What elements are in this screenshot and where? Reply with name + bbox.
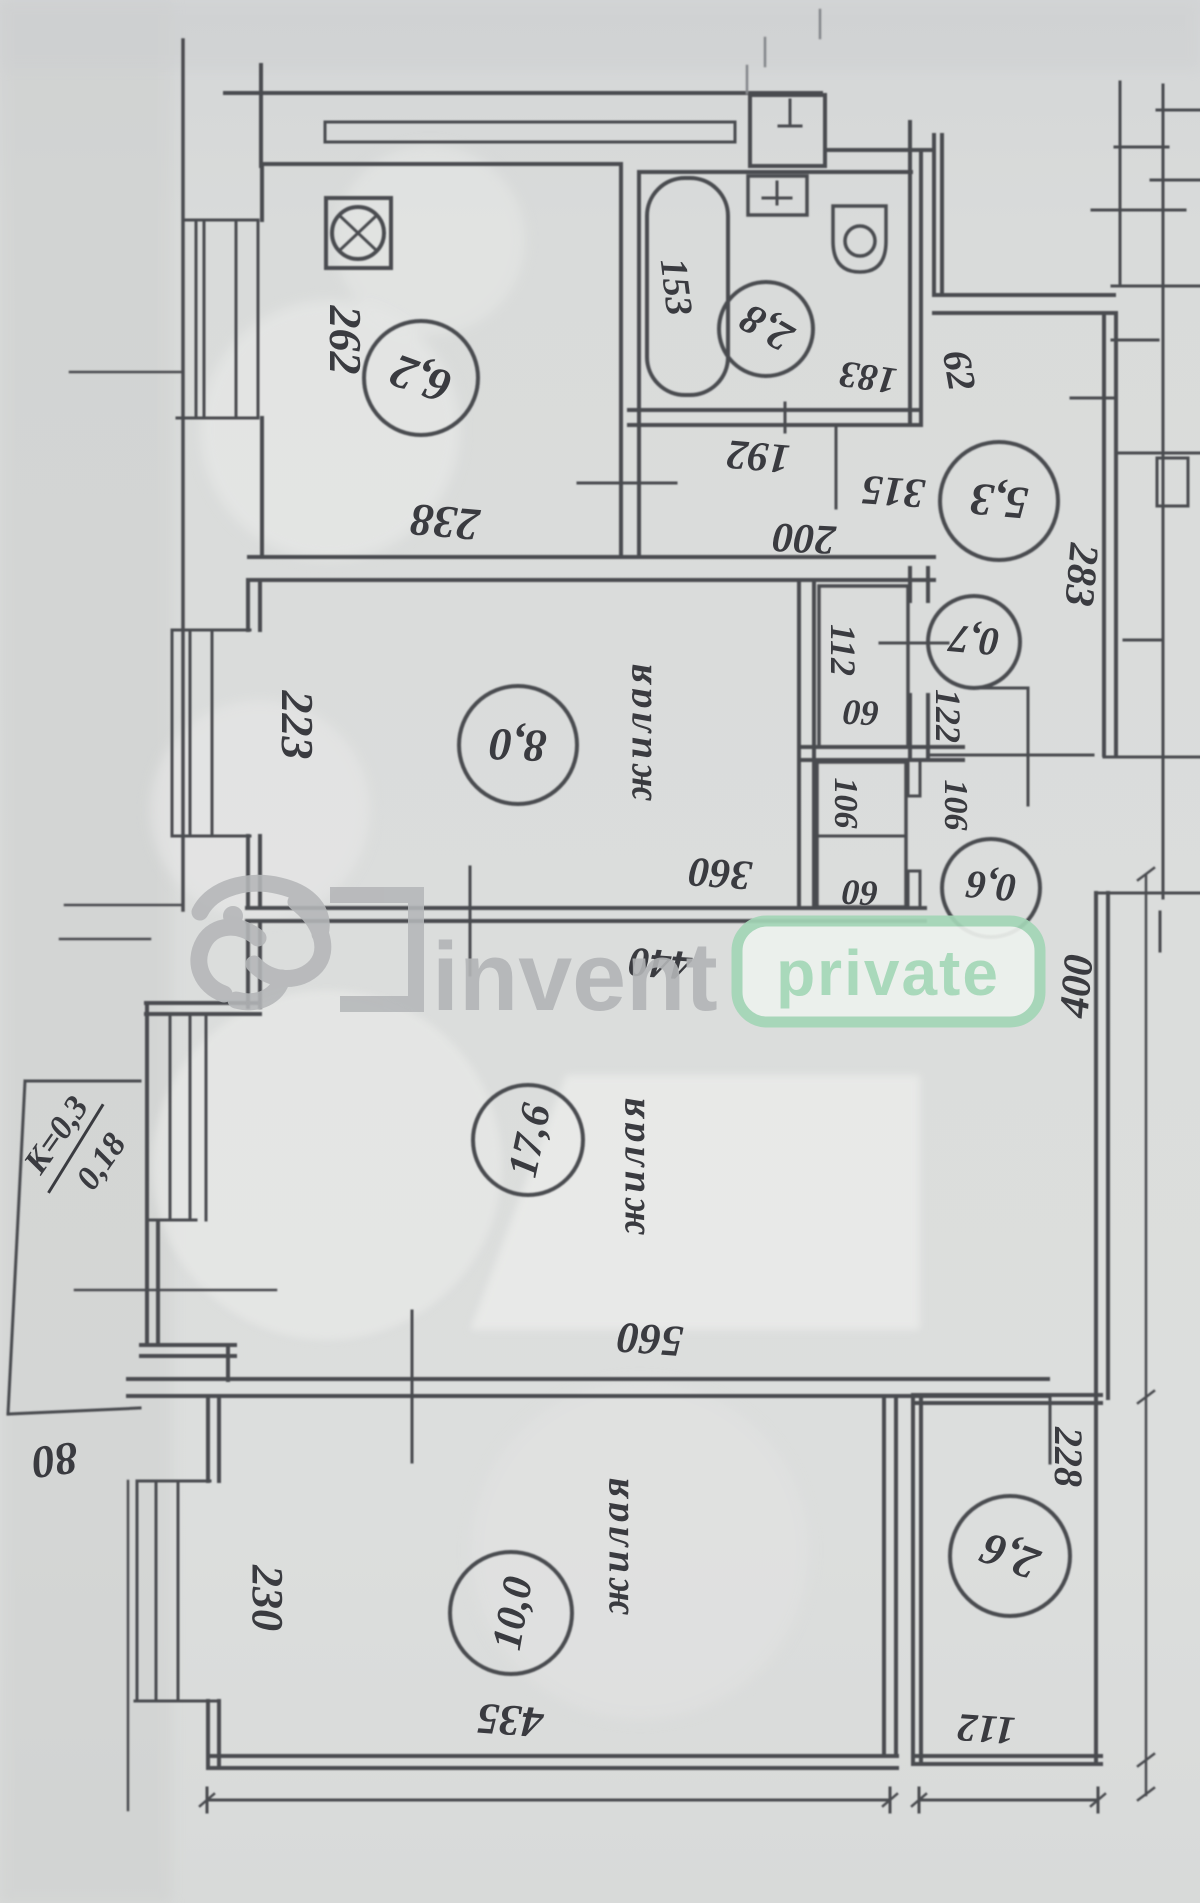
svg-text:230: 230 (243, 1564, 292, 1631)
svg-text:60: 60 (841, 872, 879, 914)
svg-text:0,7: 0,7 (945, 616, 1001, 665)
svg-text:560: 560 (615, 1313, 684, 1366)
svg-text:62: 62 (934, 347, 985, 394)
svg-text:153: 153 (652, 256, 701, 318)
svg-text:262: 262 (320, 305, 371, 375)
svg-text:238: 238 (408, 494, 482, 551)
svg-text:0,6: 0,6 (964, 862, 1018, 911)
svg-text:8,0: 8,0 (488, 719, 547, 772)
svg-text:private: private (776, 937, 1000, 1009)
svg-text:106: 106 (937, 780, 974, 831)
svg-text:жилая: жилая (592, 1473, 637, 1615)
svg-text:жилая: жилая (615, 659, 660, 801)
svg-text:80: 80 (29, 1432, 82, 1489)
svg-text:5,3: 5,3 (968, 474, 1030, 530)
svg-text:183: 183 (837, 352, 899, 402)
svg-text:192: 192 (725, 430, 792, 481)
svg-text:228: 228 (1046, 1426, 1091, 1487)
svg-text:315: 315 (860, 466, 927, 516)
svg-text:invent: invent (432, 922, 718, 1031)
svg-text:60: 60 (842, 692, 880, 734)
svg-text:112: 112 (823, 624, 863, 676)
svg-text:200: 200 (771, 513, 837, 562)
svg-text:112: 112 (956, 1705, 1017, 1754)
svg-text:283: 283 (1055, 540, 1106, 608)
svg-text:жилая: жилая (608, 1093, 653, 1235)
svg-text:106: 106 (827, 778, 864, 829)
svg-text:400: 400 (1051, 953, 1102, 1021)
svg-text:122: 122 (928, 689, 968, 743)
svg-text:223: 223 (272, 690, 323, 760)
svg-text:360: 360 (687, 848, 754, 898)
svg-text:435: 435 (475, 1694, 545, 1748)
